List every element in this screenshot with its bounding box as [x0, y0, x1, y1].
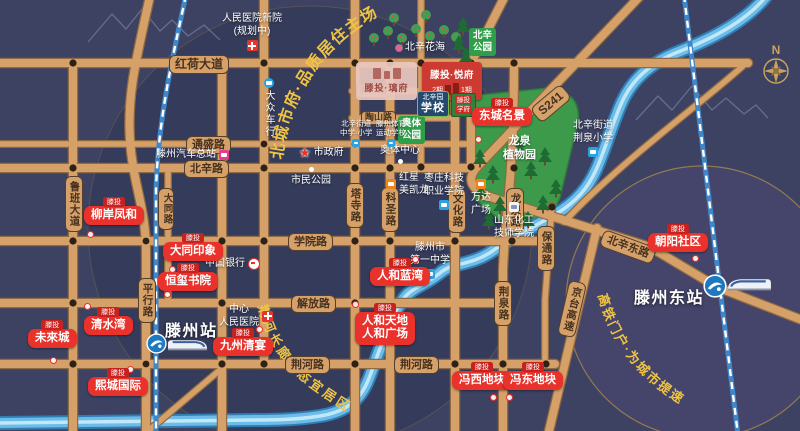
project-name: 大同印象	[163, 242, 223, 262]
road-label-jingquan: 荆泉路	[494, 281, 512, 326]
project-marker-renhe-lanwan: 滕投 人和蓝湾	[370, 258, 430, 286]
poi-name: 大众车行	[262, 90, 275, 138]
developer-tag: 滕投	[455, 96, 472, 104]
project-name: 人和天地 人和广场	[355, 312, 415, 346]
poi-new-peoples-hospital: 人民医院新院 (规划中)	[222, 12, 282, 51]
developer-tag: 滕投	[177, 263, 199, 273]
school-icon	[352, 139, 360, 147]
poi-city-government: ★ 市政府	[299, 146, 344, 159]
developer-tag: 滕投	[182, 233, 204, 243]
poi-name-line1: 山东化工	[494, 214, 534, 227]
road-label-jiefang: 解放路	[291, 295, 336, 313]
poi-dot-icon	[398, 159, 403, 164]
poi-name: 市政府	[314, 146, 344, 159]
road-label-beixin: 北辛路	[184, 160, 229, 178]
developer-tag: 滕投	[389, 258, 411, 268]
developer-tag: 滕投	[107, 368, 129, 378]
school-icon	[439, 200, 449, 210]
hospital-cross-icon	[262, 311, 273, 322]
project-name: 朝阳社区	[648, 233, 708, 253]
poi-central-peoples-hospital: 中心 人民医院	[219, 303, 273, 329]
project-marker-renhe-tiandi: 滕投 人和天地 人和广场	[355, 303, 415, 345]
bullet-train-icon	[167, 337, 209, 357]
road-label-jinghe-west: 荆河路	[285, 356, 330, 374]
road-label-datong: 大同路	[158, 188, 174, 230]
railway-logo-icon	[703, 274, 727, 303]
road-label-jinghe-east: 荆河路	[394, 356, 439, 374]
poi-name: 市民公园	[291, 174, 331, 187]
government-star-icon: ★	[299, 146, 311, 159]
road-label-xueyuan: 学院路	[288, 233, 333, 251]
park-label-beixin: 北辛 公园	[469, 28, 496, 56]
project-name: 冯东地块	[503, 371, 563, 391]
logo-title: 滕投·璃府	[365, 81, 409, 94]
poi-flower-sea: 北辛花海	[396, 41, 445, 54]
car-dealer-icon	[264, 78, 274, 88]
poi-name-line1: 人民医院新院	[222, 12, 282, 25]
poi-zaozhuang-vocational-college: 枣庄科技 职业学院	[424, 172, 464, 210]
school-icon	[387, 139, 395, 147]
poi-name-line1: 万达	[471, 191, 491, 204]
road-label-luban-avenue: 鲁班大道	[65, 176, 83, 232]
flower-icon	[396, 45, 402, 51]
project-marker-datong-yinxiang: 滕投 大同印象	[163, 233, 223, 261]
park-name-line2: 公园	[473, 42, 492, 54]
project-name: 人和蓝湾	[370, 267, 430, 287]
developer-tag: 滕投	[471, 362, 493, 372]
poi-name-line2: 中学·小学	[340, 128, 373, 137]
project-name: 九州清宴	[213, 337, 273, 357]
tengzhou-location-map: N 北城市府·品质居住主场 荆河长廊生态宜居区 高铁门户·为城市提速 红荷大道 …	[0, 0, 800, 431]
bank-icon	[248, 258, 260, 270]
developer-tag: 滕投	[491, 98, 513, 108]
road-label-honghe-avenue: 红荷大道	[169, 55, 229, 74]
poi-beixin-street-schools: 北辛街道 中学·小学	[340, 119, 373, 147]
project-name: 清水湾	[84, 316, 133, 336]
poi-name-line1: 枣庄科技	[424, 172, 464, 185]
station-name-tengzhou-east: 滕州东站	[634, 284, 704, 308]
poi-dot-icon	[309, 167, 314, 172]
marker-anchor-dot	[475, 136, 482, 143]
school-icon	[509, 202, 519, 212]
poi-name-line1: 滕州市	[410, 241, 450, 254]
poi-name-line2: 技师学院	[494, 227, 534, 240]
poi-name-line1: 北辛街道	[573, 119, 613, 132]
logo-box-lifu: 滕投·璃府	[356, 62, 417, 100]
poi-wanda-plaza: 万达 广场	[471, 179, 491, 217]
project-marker-jiuzhou-qingyan: 滕投 九州清宴	[213, 328, 273, 356]
developer-tag: 滕投	[97, 307, 119, 317]
developer-tag: 滕投	[103, 197, 125, 207]
project-marker-hengxi-shuyuan: 滕投 恒玺书院	[158, 263, 218, 291]
poi-name-line2: 运动学校	[376, 128, 406, 137]
poi-aoti-center: 奥体中心	[380, 144, 420, 164]
hospital-cross-icon	[247, 40, 258, 51]
project-name-line1: 人和天地	[362, 315, 408, 327]
developer-tag: 滕投	[667, 224, 689, 234]
marker-anchor-dot	[490, 394, 497, 401]
project-name: 未來城	[28, 329, 77, 349]
logo-title: 滕投·悦府	[430, 67, 474, 81]
bus-station-icon	[219, 150, 229, 160]
developer-tag: 滕投	[374, 303, 396, 313]
road-label-baotong: 保通路	[537, 226, 555, 271]
poi-name-line2: 广场	[471, 204, 491, 217]
marker-anchor-dot	[50, 357, 57, 364]
project-marker-weilaicheng: 滕投 未來城	[28, 320, 77, 348]
developer-tag: 滕投	[522, 362, 544, 372]
poi-sports-school: 滕州体育 运动学校	[376, 119, 406, 147]
school-name-line1: 北辛园	[421, 94, 445, 102]
poi-redstar-macalline: 红星 美凯龙	[386, 171, 429, 197]
project-name-line2: 人和广场	[362, 328, 408, 340]
bullet-train-icon	[726, 276, 772, 297]
marker-anchor-dot	[506, 394, 513, 401]
project-marker-chaoyang-shequ: 滕投 朝阳社区	[648, 224, 708, 252]
poi-name-line2: 荆泉小学	[573, 132, 613, 145]
compass-north-label: N	[772, 43, 781, 57]
developer-tag: 滕投	[41, 320, 63, 330]
project-marker-qingshuiwan: 滕投 清水湾	[84, 307, 133, 335]
park-name-line1: 龙泉	[503, 134, 536, 148]
road-label-tasi: 塔寺路	[346, 183, 364, 228]
project-name: 柳岸凤和	[84, 206, 144, 226]
road-label-pingxing: 平行路	[138, 278, 156, 323]
railway-logo-icon	[146, 333, 167, 359]
marker-anchor-dot	[87, 231, 94, 238]
poi-name: 北辛花海	[405, 41, 445, 54]
marker-anchor-dot	[692, 255, 699, 262]
mall-icon	[386, 179, 396, 189]
project-marker-xicheng-guoji: 滕投 熙城国际	[88, 368, 148, 396]
project-marker-fengdong-plot: 滕投 冯东地块	[503, 362, 563, 390]
marker-anchor-dot	[164, 291, 171, 298]
project-name: 熙城国际	[88, 377, 148, 397]
poi-jingquan-primary-school: 北辛街道 荆泉小学	[573, 119, 613, 157]
beixinyuan-school-box: 北辛园 学校	[417, 91, 449, 117]
poi-name-line2: (规划中)	[222, 25, 282, 38]
project-marker-dongcheng-mingjing: 滕投 东城名景	[472, 98, 532, 126]
project-name: 学府	[455, 106, 472, 114]
poi-name-line1: 滕州体育	[376, 119, 406, 128]
poi-dazhong-auto: 大众车行	[262, 78, 275, 138]
poi-chemical-technician-college: 山东化工 技师学院	[494, 202, 534, 240]
park-name-line1: 北辛	[473, 30, 492, 42]
project-name: 恒玺书院	[158, 272, 218, 292]
poi-name: 滕州汽车总站	[156, 148, 216, 161]
developer-tag: 滕投	[232, 328, 254, 338]
park-name-line2: 植物园	[503, 148, 536, 162]
project-marker-liuan-fenghe: 滕投 柳岸凤和	[84, 197, 144, 225]
poi-bus-terminal: 滕州汽车总站	[156, 148, 229, 161]
poi-name-line1: 北辛街道	[340, 119, 373, 128]
mall-icon	[476, 179, 486, 189]
school-name-line2: 学校	[421, 102, 445, 114]
compass-rose: N	[764, 43, 788, 83]
poi-citizen-park: 市民公园	[291, 167, 331, 187]
poi-name-line2: 职业学院	[424, 185, 464, 198]
poi-botanical-garden: 龙泉 植物园	[503, 134, 536, 163]
poi-name-line1: 中心	[219, 303, 259, 316]
school-icon	[588, 147, 598, 157]
building-icons	[373, 68, 401, 79]
project-name: 东城名景	[472, 107, 532, 127]
